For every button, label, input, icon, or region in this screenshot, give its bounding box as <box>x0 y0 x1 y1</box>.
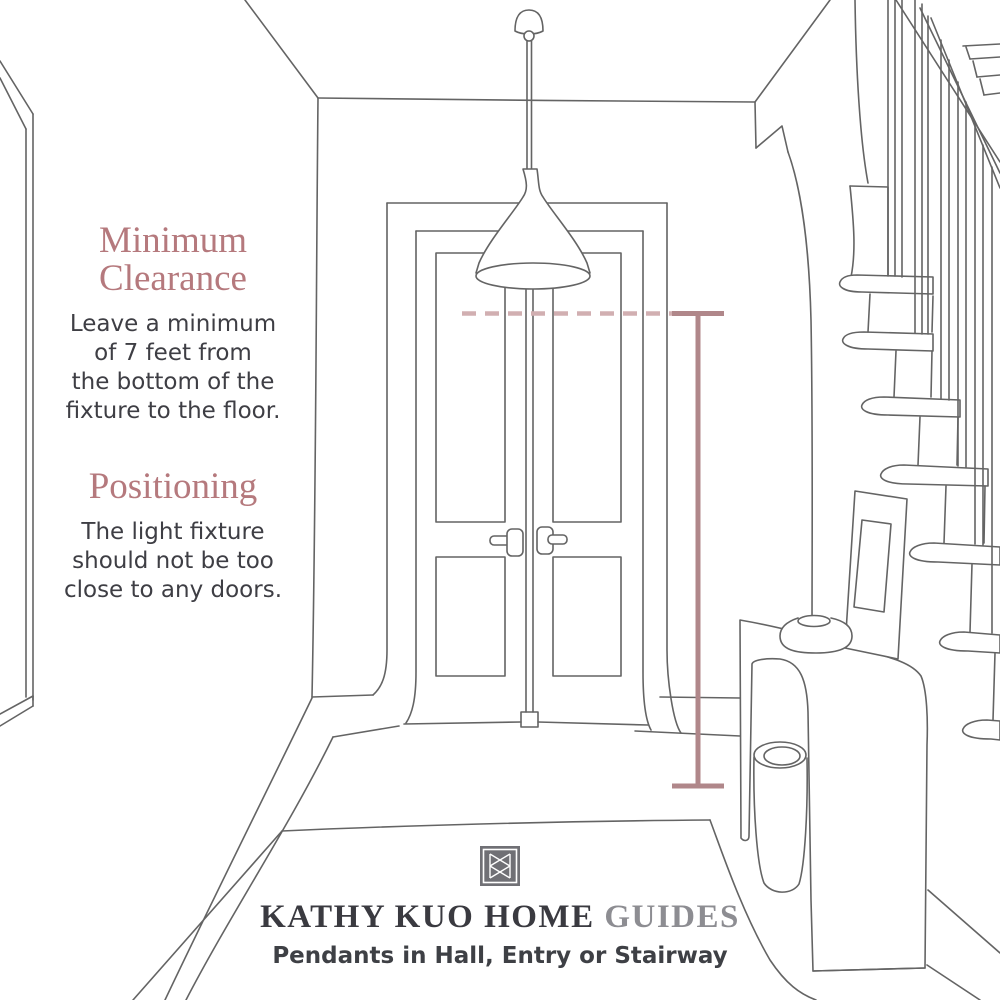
door-panel <box>436 253 505 522</box>
door-panel <box>553 253 621 522</box>
note-body: The light fixture should not be too clos… <box>28 518 318 605</box>
door-panel <box>436 557 505 676</box>
positioning-note: Positioning The light fixture should not… <box>28 468 318 605</box>
footer: KATHY KUO HOME GUIDES Pendants in Hall, … <box>0 840 1000 969</box>
infographic-canvas: Minimum Clearance Leave a minimum of 7 f… <box>0 0 1000 1000</box>
pendant-light-icon <box>476 10 590 289</box>
pendant-shade <box>476 169 590 273</box>
body-line: the bottom of the <box>28 368 318 397</box>
brand-suffix: GUIDES <box>604 899 740 935</box>
brand-title: KATHY KUO HOME GUIDES <box>0 899 1000 935</box>
note-body: Leave a minimum of 7 feet from the botto… <box>28 310 318 426</box>
body-line: of 7 feet from <box>28 339 318 368</box>
body-line: should not be too <box>28 547 318 576</box>
body-line: fixture to the floor. <box>28 397 318 426</box>
title-line: Minimum <box>28 222 318 260</box>
door-panel <box>553 557 621 676</box>
upper-steps <box>963 44 1000 95</box>
body-line: The light fixture <box>28 518 318 547</box>
decorative-bowl <box>780 616 852 654</box>
title-line: Clearance <box>28 260 318 298</box>
guide-subtitle: Pendants in Hall, Entry or Stairway <box>0 943 1000 969</box>
title-line: Positioning <box>28 468 318 506</box>
kathy-kuo-home-monogram-icon <box>480 846 520 886</box>
pendant-shade-rim <box>476 263 590 289</box>
note-title: Minimum Clearance <box>28 222 318 298</box>
picture-frame <box>845 491 907 659</box>
door-handles <box>490 527 567 556</box>
newel-post <box>850 186 888 277</box>
brand-name: KATHY KUO HOME <box>260 899 595 935</box>
stair-stringer <box>855 0 868 183</box>
body-line: close to any doors. <box>28 576 318 605</box>
clearance-measure-line <box>672 314 724 787</box>
minimum-clearance-note: Minimum Clearance Leave a minimum of 7 f… <box>28 222 318 426</box>
note-title: Positioning <box>28 468 318 506</box>
body-line: Leave a minimum <box>28 310 318 339</box>
